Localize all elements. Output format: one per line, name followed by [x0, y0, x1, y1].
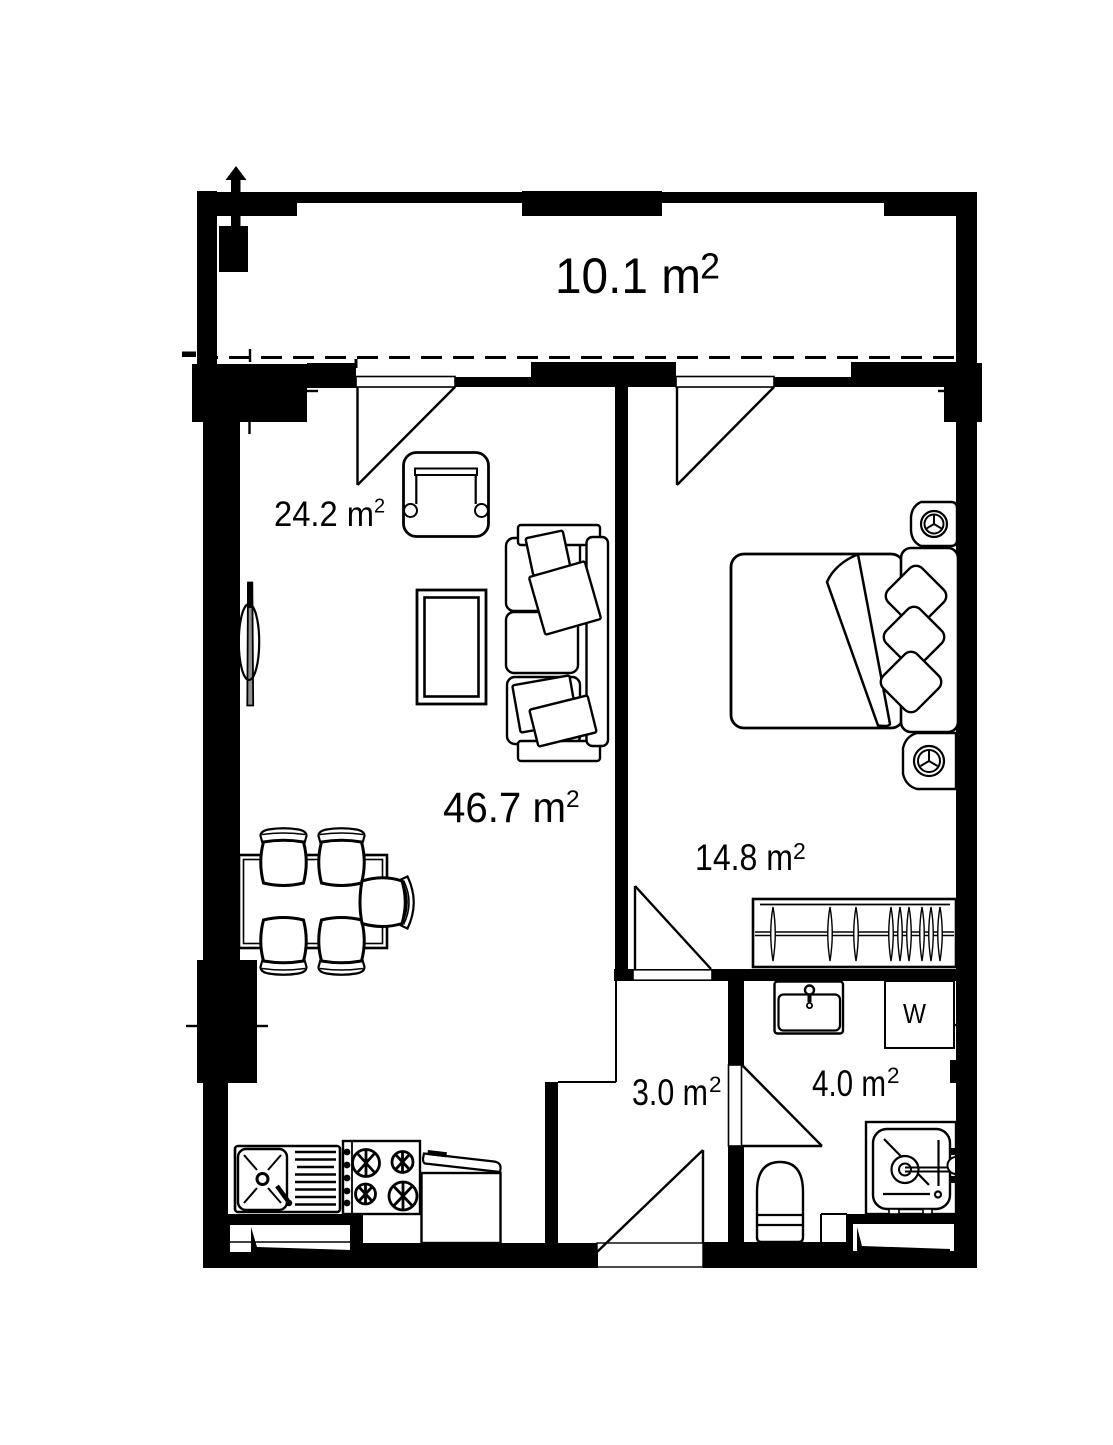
svg-text:4.0 m: 4.0 m — [812, 1063, 886, 1104]
svg-text:2: 2 — [887, 1063, 900, 1088]
svg-text:14.8 m: 14.8 m — [695, 837, 793, 878]
svg-text:46.7 m: 46.7 m — [443, 784, 566, 832]
svg-text:24.2 m: 24.2 m — [274, 495, 374, 534]
svg-text:2: 2 — [566, 786, 580, 813]
svg-text:3.0 m: 3.0 m — [632, 1072, 708, 1113]
svg-text:W: W — [903, 998, 926, 1029]
svg-text:2: 2 — [374, 496, 385, 518]
svg-text:2: 2 — [793, 838, 806, 864]
svg-text:2: 2 — [709, 1072, 722, 1097]
svg-text:2: 2 — [700, 246, 720, 287]
svg-text:10.1 m: 10.1 m — [555, 248, 701, 304]
